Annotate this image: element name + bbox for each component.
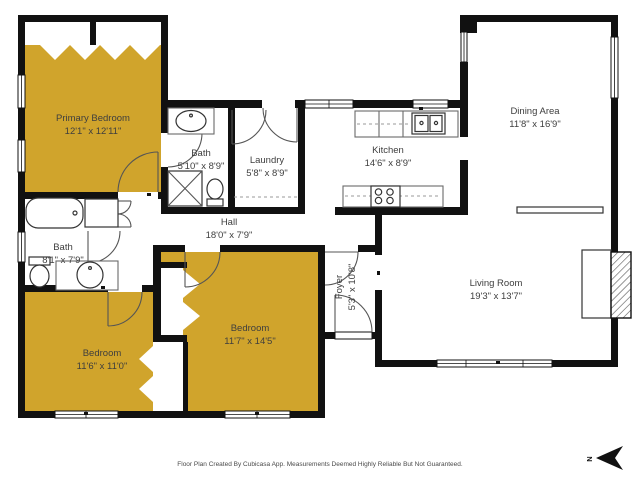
dims-kitchen: 14'6" x 8'9": [365, 158, 412, 169]
dims-primary-bath: 5'10" x 8'9": [178, 161, 225, 172]
kitchen-sink: [412, 113, 445, 134]
dims-hall-bath: 8'1" x 7'9": [42, 255, 84, 266]
window: [305, 100, 353, 108]
dims-living-room: 19'3" x 13'7": [470, 291, 522, 302]
window: [18, 232, 25, 262]
dims-primary-bedroom: 12'1" x 12'11": [65, 126, 122, 137]
label-dining-area: Dining Area: [510, 106, 560, 117]
bathroom-vanity-sink: [168, 108, 214, 134]
stove: [371, 186, 400, 207]
label-living-room: Living Room: [470, 278, 523, 289]
dims-bedroom-s: 11'7" x 14'5": [224, 336, 275, 347]
window: [461, 32, 467, 62]
disclaimer-text: Floor Plan Created By Cubicasa App. Meas…: [177, 461, 463, 468]
closet-bedroom-sw: [153, 342, 183, 411]
window: [413, 100, 448, 108]
label-foyer: Foyer: [334, 275, 345, 299]
north-arrow-icon: N: [585, 446, 623, 470]
dims-laundry: 5'8" x 8'9": [246, 168, 288, 179]
label-primary-bath: Bath: [191, 148, 211, 159]
hall-closet: [85, 199, 118, 227]
toilet: [207, 179, 223, 206]
label-bedroom-sw: Bedroom: [83, 348, 122, 359]
window: [18, 75, 25, 108]
bathtub: [26, 198, 83, 228]
north-label: N: [585, 456, 594, 461]
label-bedroom-s: Bedroom: [231, 323, 270, 334]
window: [611, 37, 618, 98]
label-primary-bedroom: Primary Bedroom: [56, 113, 130, 124]
dims-foyer: 5'3" x 10'8": [347, 264, 358, 311]
dims-bedroom-sw: 11'6" x 11'0": [77, 361, 128, 372]
window: [18, 140, 25, 172]
label-kitchen: Kitchen: [372, 145, 404, 156]
floor-plan-canvas: Primary Bedroom 12'1" x 12'11" Bath 5'10…: [0, 0, 640, 480]
door-hall-bath: [88, 231, 120, 263]
dining-counter: [517, 207, 603, 213]
dims-dining-area: 11'8" x 16'9": [509, 119, 560, 130]
closet-bedroom-s: [161, 268, 183, 335]
dims-hall: 18'0" x 7'9": [206, 230, 253, 241]
label-laundry: Laundry: [250, 155, 285, 166]
fireplace: [582, 250, 631, 318]
door-laundry: [263, 108, 297, 142]
shower: [168, 171, 202, 206]
north-arrow-shape: [596, 446, 623, 470]
door-hall-closet: [118, 201, 131, 227]
door-laundry-2: [232, 110, 266, 144]
window: [437, 360, 552, 367]
label-hall: Hall: [221, 217, 237, 228]
label-hall-bath: Bath: [53, 242, 73, 253]
